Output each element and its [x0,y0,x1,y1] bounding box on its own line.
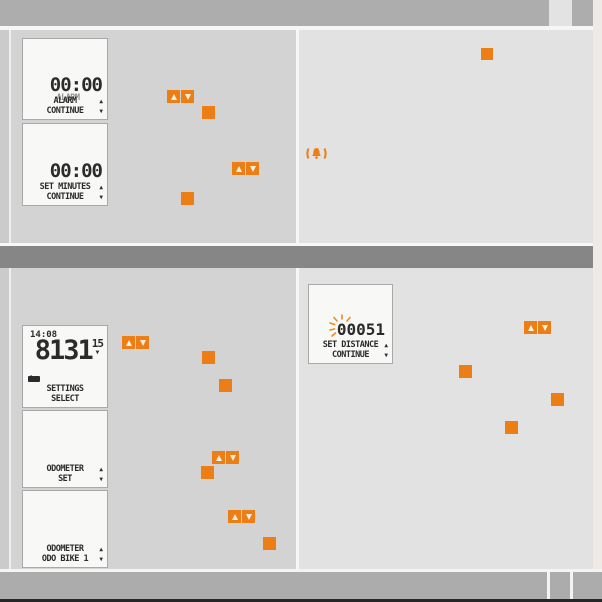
lcd-trip-digits: 15 [92,338,103,349]
button-press-marker[interactable] [263,537,276,550]
button-press-marker[interactable] [201,466,214,479]
up-arrow-button[interactable] [122,336,135,349]
lcd-screen-settings: 14:08 8131 15 ▼ ↑ SETTINGS SELECT [22,325,108,408]
manual-page: 00:00 ALARM ALARM ▲ CONTINUE ▼ 00:00 SET… [0,0,602,602]
down-arrow-icon [230,455,236,461]
lcd-label: ODO BIKE 1 [42,554,88,564]
button-press-marker[interactable] [551,393,564,406]
lcd-down-arrow: ▼ [99,475,103,485]
panel-left-strip [0,30,9,243]
up-arrow-icon [171,94,177,100]
lcd-down-arrow: ▼ [99,555,103,565]
panel-left-strip [0,268,9,569]
up-arrow-button[interactable] [167,90,180,103]
lcd-time-digits: 00:00 [25,161,105,181]
section-divider-bar [0,246,593,268]
lcd-label: CONTINUE [332,350,369,360]
up-arrow-button[interactable] [228,510,241,523]
down-arrow-icon [542,325,548,331]
lcd-screen-odometer-set: ODOMETER ▲ SET ▼ [22,410,108,488]
lcd-down-arrow: ▼ [99,107,103,117]
button-press-marker[interactable] [505,421,518,434]
up-arrow-icon [236,166,242,172]
lcd-time-digits: 00:00 [25,75,105,95]
lcd-label: SET MINUTES [40,182,91,192]
lcd-label: CONTINUE [47,106,84,116]
down-arrow-icon [140,340,146,346]
down-arrow-button[interactable] [136,336,149,349]
lcd-label: SET [58,474,72,484]
lcd-up-mark: ↑ [29,374,105,381]
button-press-marker[interactable] [202,106,215,119]
lcd-label: CONTINUE [47,192,84,202]
top-header-bar [0,0,593,26]
panel-left-seam [9,30,11,243]
lcd-screen-odometer-bike: ODOMETER ▲ ODO BIKE 1 ▼ [22,490,108,568]
up-arrow-button[interactable] [232,162,245,175]
panel-seam [296,268,299,569]
alarm-bell-icon [305,145,328,166]
up-arrow-icon [528,325,534,331]
down-arrow-button[interactable] [242,510,255,523]
lcd-label: SET DISTANCE [323,340,378,350]
lcd-label: ODOMETER [47,464,84,474]
lcd-down-arrow: ▼ [96,349,100,356]
footer-bar-gap [570,572,573,600]
up-arrow-button[interactable] [524,321,537,334]
lcd-label: SETTINGS [47,384,84,394]
button-press-marker[interactable] [181,192,194,205]
button-press-marker[interactable] [481,48,493,60]
button-press-marker[interactable] [202,351,215,364]
page-edge-strip [593,0,602,572]
lcd-label: ODOMETER [47,544,84,554]
footer-bar-gap [547,572,550,600]
lcd-down-arrow: ▼ [99,193,103,203]
lcd-screen-set-minutes: 00:00 SET MINUTES ▲ CONTINUE ▼ [22,123,108,206]
lcd-screen-set-distance: 0 0051 SET DISTANCE ▲ CONTINUE ▼ [308,284,393,364]
down-arrow-icon [185,94,191,100]
lcd-blinking-digit: 0 [337,321,347,339]
up-arrow-icon [232,514,238,520]
panel-left-seam [9,268,11,569]
lcd-down-arrow: ▼ [384,351,388,361]
lcd-label-ghost: ALARM [56,93,79,103]
down-arrow-button[interactable] [538,321,551,334]
up-arrow-button[interactable] [212,451,225,464]
lcd-odometer-digits: 8131 [35,337,92,365]
bottom-footer-bar [0,572,602,600]
down-arrow-icon [250,166,256,172]
lcd-distance-digits: 0051 [346,320,385,339]
down-arrow-icon [246,514,252,520]
top-bar-light-block [549,0,572,26]
panel-seam [296,30,299,243]
down-arrow-button[interactable] [226,451,239,464]
up-arrow-icon [126,340,132,346]
button-press-marker[interactable] [459,365,472,378]
lcd-label: SELECT [51,394,79,404]
down-arrow-button[interactable] [181,90,194,103]
panel-right-zone [299,30,593,243]
button-press-marker[interactable] [219,379,232,392]
lcd-screen-alarm: 00:00 ALARM ALARM ▲ CONTINUE ▼ [22,38,108,120]
down-arrow-button[interactable] [246,162,259,175]
up-arrow-icon [216,455,222,461]
